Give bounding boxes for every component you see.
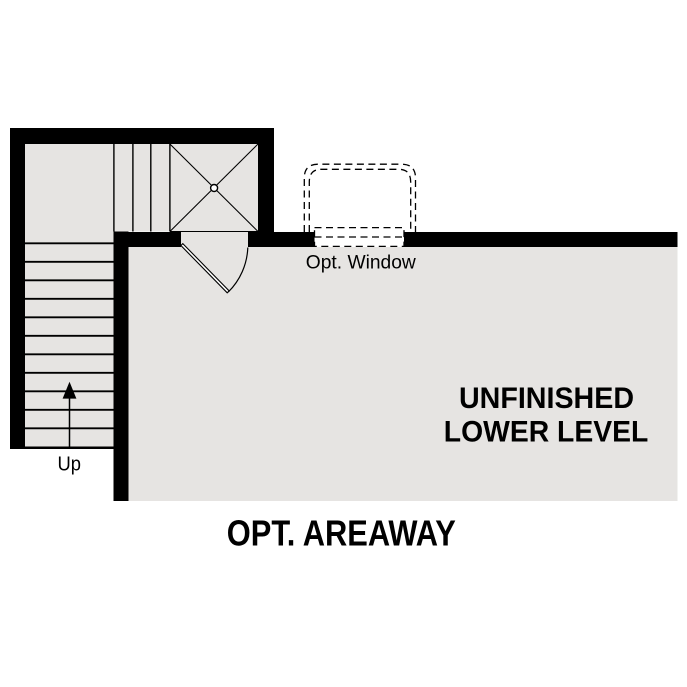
- svg-text:Opt. Window: Opt. Window: [306, 253, 416, 274]
- svg-text:LOWER LEVEL: LOWER LEVEL: [444, 416, 649, 449]
- svg-text:OPT. AREAWAY: OPT. AREAWAY: [227, 513, 456, 554]
- svg-text:Up: Up: [58, 453, 82, 475]
- svg-text:UNFINISHED: UNFINISHED: [459, 382, 634, 415]
